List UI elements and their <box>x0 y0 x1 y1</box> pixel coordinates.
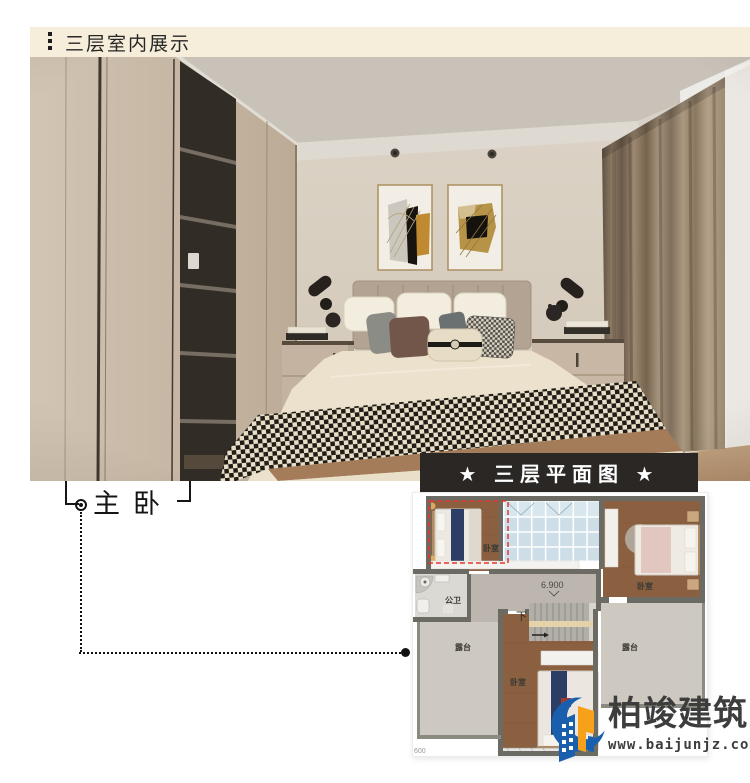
bedroom-photo-scene <box>30 57 750 481</box>
page: { "header": { "title": "三层室内展示", "bg_col… <box>0 0 750 783</box>
vignette <box>30 57 750 481</box>
label-bathroom: 公卫 <box>445 596 461 605</box>
room-terrace-right <box>601 603 702 705</box>
leader-start-bullet <box>75 499 87 511</box>
room-terrace-left <box>419 622 498 736</box>
bedroom-photo <box>30 57 750 481</box>
callout-bracket-right <box>177 481 191 502</box>
label-stairs-down: 下 <box>516 611 527 623</box>
label-partial-dimension: 600 <box>414 748 426 755</box>
label-terrace-right: 露台 <box>622 642 638 652</box>
leader-end-bullet <box>401 648 410 657</box>
brand-website: www.baijunjz.com <box>608 737 750 753</box>
closet-band <box>431 561 579 569</box>
brand-logo: 柏竣建筑 www.baijunjz.com <box>542 694 750 766</box>
leader-line-horizontal <box>79 652 405 654</box>
section-title: 三层室内展示 <box>65 29 191 56</box>
leader-line-vertical <box>80 512 82 652</box>
label-bedroom-tl: 卧室 <box>483 543 499 553</box>
brand-name: 柏竣建筑 <box>608 694 750 734</box>
floorplan-title: ★ 三层平面图 ★ <box>420 453 698 492</box>
brand-logo-icon <box>542 694 606 766</box>
label-bedroom-bottom: 卧室 <box>510 677 526 687</box>
label-bedroom-tr: 卧室 <box>637 581 653 591</box>
skylight <box>504 501 601 561</box>
stairs <box>529 603 596 641</box>
header-dash-accent <box>48 32 52 53</box>
label-elevation: 6.900 <box>541 580 564 590</box>
callout-label: 主卧 <box>93 482 173 521</box>
bed-top-left <box>429 503 482 564</box>
label-terrace-left: 露台 <box>455 642 471 652</box>
section-header: 三层室内展示 <box>30 27 750 57</box>
